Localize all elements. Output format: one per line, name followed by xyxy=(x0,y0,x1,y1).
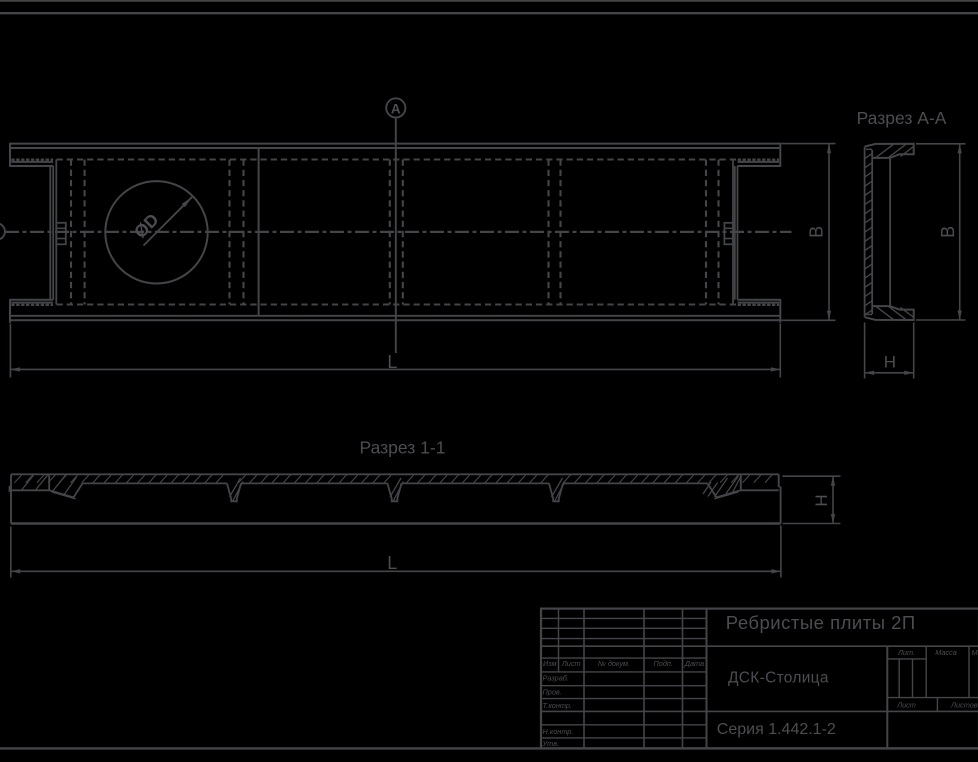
svg-text:ДСК-Столица: ДСК-Столица xyxy=(728,669,829,686)
svg-text:Пров.: Пров. xyxy=(543,687,562,696)
svg-text:Разраб.: Разраб. xyxy=(543,674,569,683)
svg-text:Утв.: Утв. xyxy=(542,739,560,748)
svg-text:Масса: Масса xyxy=(935,648,957,657)
svg-text:Лист: Лист xyxy=(896,701,916,710)
svg-text:L: L xyxy=(387,352,397,372)
svg-text:Дата: Дата xyxy=(684,659,704,668)
svg-text:Масштаб: Масштаб xyxy=(972,648,978,657)
svg-text:Ребристые плиты 2П: Ребристые плиты 2П xyxy=(726,612,916,633)
svg-text:Подп.: Подп. xyxy=(653,659,672,668)
svg-text:Листов: Листов xyxy=(950,701,978,710)
svg-text:Т.контр.: Т.контр. xyxy=(543,701,572,710)
svg-text:№ докум.: № докум. xyxy=(598,659,630,668)
svg-text:L: L xyxy=(387,553,397,573)
svg-text:H: H xyxy=(812,494,831,506)
svg-text:Разрез А-А: Разрез А-А xyxy=(857,108,947,128)
svg-text:Разрез 1-1: Разрез 1-1 xyxy=(360,438,446,458)
svg-text:B: B xyxy=(807,226,827,238)
svg-text:А: А xyxy=(391,101,401,116)
svg-text:Н.контр.: Н.контр. xyxy=(543,727,574,736)
svg-text:B: B xyxy=(938,226,958,238)
svg-text:Лит.: Лит. xyxy=(897,648,915,657)
svg-text:Лист: Лист xyxy=(561,659,581,668)
svg-text:Изм: Изм xyxy=(543,659,557,668)
svg-text:H: H xyxy=(884,353,896,372)
svg-text:Серия 1.442.1-2: Серия 1.442.1-2 xyxy=(717,721,836,738)
